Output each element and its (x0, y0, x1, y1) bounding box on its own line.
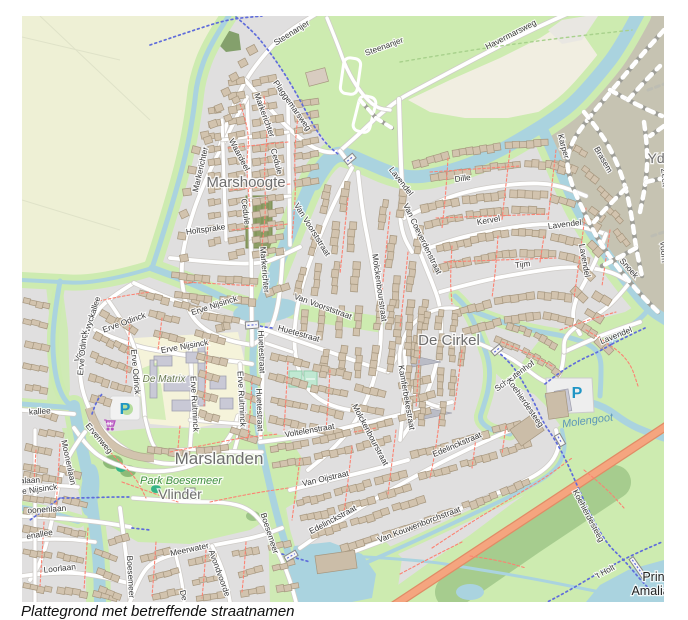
svg-text:P: P (120, 401, 131, 418)
svg-text:Tijm: Tijm (514, 258, 531, 270)
svg-text:De Matrix: De Matrix (143, 374, 187, 385)
svg-text:Huetestraat: Huetestraat (256, 330, 268, 374)
svg-text:Huetestraat: Huetestraat (254, 388, 266, 432)
svg-text:P: P (572, 385, 583, 402)
svg-text:Park Boesemeer: Park Boesemeer (140, 475, 223, 487)
svg-text:Vlinder: Vlinder (158, 486, 202, 502)
svg-text:alaan: alaan (20, 475, 41, 486)
svg-text:De Cirkel: De Cirkel (418, 332, 480, 349)
svg-text:Marshoogte: Marshoogte (206, 174, 285, 191)
svg-text:Marslanden: Marslanden (175, 449, 264, 468)
svg-text:kallee: kallee (29, 405, 52, 417)
svg-text:Plattegrond met betreffende st: Plattegrond met betreffende straatnamen (21, 603, 295, 620)
